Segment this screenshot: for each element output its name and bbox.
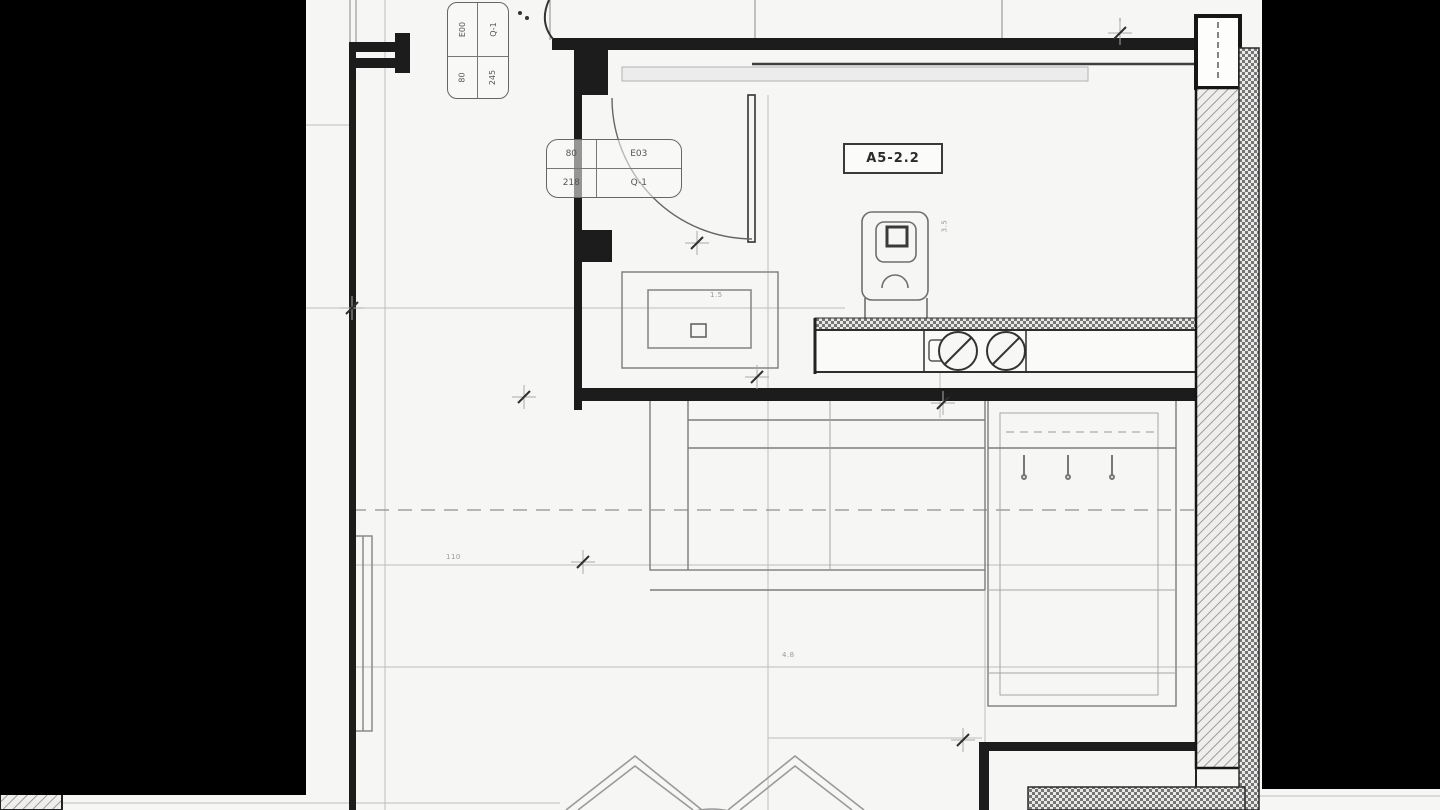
wall-hatch-column bbox=[1196, 88, 1240, 768]
sofa bbox=[650, 400, 985, 590]
dimension-ticks bbox=[340, 21, 1132, 752]
door-leaf bbox=[748, 95, 755, 242]
left-mask bbox=[0, 0, 306, 795]
lintel-track bbox=[622, 67, 1088, 81]
dim-label: 4.8 bbox=[782, 651, 795, 659]
floor-plan-drawing bbox=[0, 0, 1440, 810]
toilet bbox=[862, 212, 928, 319]
schedule-cell: E00 bbox=[448, 3, 478, 57]
dim-label: 3.5 bbox=[940, 220, 948, 233]
backsplash-tile-strip bbox=[815, 318, 1196, 330]
schedule-tag-bathroom: 80 E03 218 Q-1 bbox=[546, 139, 682, 198]
schedule-cell: 80 bbox=[547, 140, 597, 169]
schedule-cell: Q-1 bbox=[597, 169, 681, 198]
floor-plan-stage: A5-2.2 E00 Q-1 80 245 80 E03 218 Q-1 110… bbox=[0, 0, 1440, 810]
kitchen-counter bbox=[815, 318, 1196, 374]
schedule-cell: Q-1 bbox=[478, 3, 508, 57]
bed-hook-icon bbox=[1022, 455, 1114, 479]
schedule-cell: 245 bbox=[478, 57, 508, 98]
schedule-cell: 80 bbox=[448, 57, 478, 98]
dim-label: 110 bbox=[446, 553, 461, 561]
survey-dots bbox=[518, 11, 529, 20]
wall-end-curve bbox=[545, 0, 553, 39]
bottom-insulation-strip bbox=[1028, 787, 1245, 810]
folding-chevrons bbox=[566, 756, 864, 810]
bed bbox=[988, 400, 1176, 706]
right-mask bbox=[1262, 0, 1440, 789]
shower-tray bbox=[622, 272, 778, 368]
room-tag: A5-2.2 bbox=[843, 143, 943, 174]
interior-walls bbox=[349, 33, 1197, 810]
schedule-cell: 218 bbox=[547, 169, 597, 198]
schedule-tag-top: E00 Q-1 80 245 bbox=[447, 2, 509, 99]
schedule-cell: E03 bbox=[597, 140, 681, 169]
insulation-strip bbox=[1239, 48, 1259, 810]
dim-label: 1.5 bbox=[710, 291, 723, 299]
exterior-wall bbox=[1196, 16, 1259, 810]
